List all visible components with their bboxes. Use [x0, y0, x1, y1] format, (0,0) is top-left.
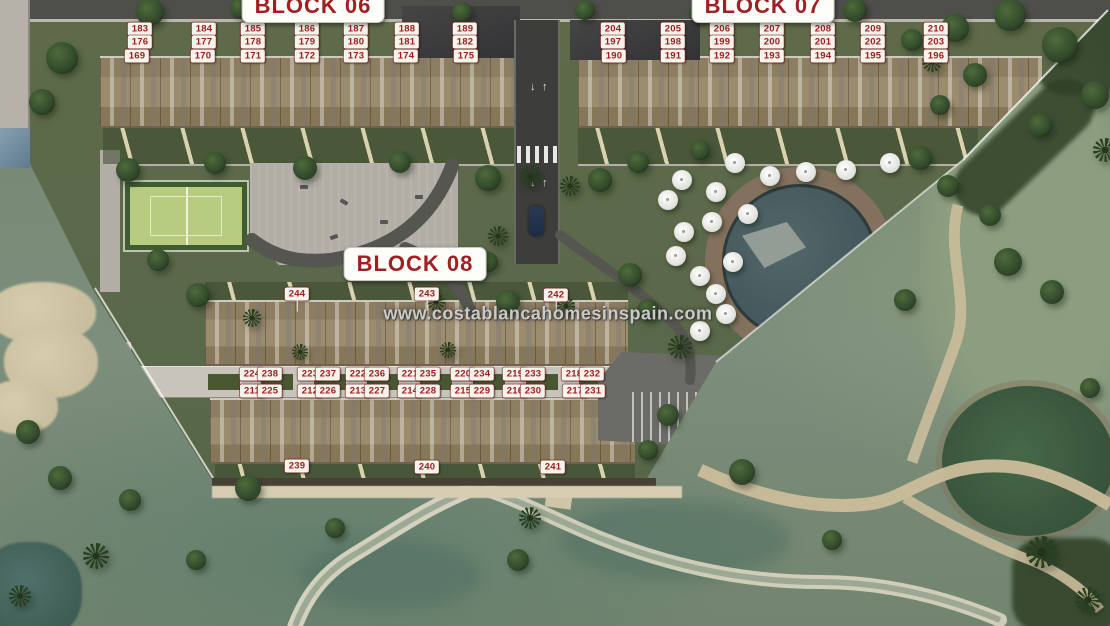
unit-label-235: 235	[416, 368, 440, 381]
unit-label-228: 228	[416, 385, 440, 398]
unit-label-170: 170	[191, 50, 215, 63]
umbrella-icon	[690, 266, 710, 286]
umbrella-icon	[836, 160, 856, 180]
unit-label-231: 231	[581, 385, 605, 398]
unit-label-191: 191	[661, 50, 685, 63]
unit-label-180: 180	[344, 36, 368, 49]
unit-label-210: 210	[924, 23, 948, 36]
unit-label-207: 207	[760, 23, 784, 36]
unit-label-184: 184	[192, 23, 216, 36]
unit-label-188: 188	[395, 23, 419, 36]
unit-label-174: 174	[394, 50, 418, 63]
unit-label-183: 183	[128, 23, 152, 36]
unit-label-192: 192	[710, 50, 734, 63]
unit-label-197: 197	[601, 36, 625, 49]
unit-label-169: 169	[125, 50, 149, 63]
unit-label-234: 234	[470, 368, 494, 381]
unit-label-185: 185	[241, 23, 265, 36]
unit-label-171: 171	[241, 50, 265, 63]
unit-label-193: 193	[760, 50, 784, 63]
block-08-title: BLOCK 08	[344, 247, 487, 281]
umbrella-icon	[674, 222, 694, 242]
unit-label-239: 239	[285, 460, 309, 473]
unit-label-205: 205	[661, 23, 685, 36]
umbrella-icon	[738, 204, 758, 224]
unit-label-182: 182	[453, 36, 477, 49]
unit-label-237: 237	[316, 368, 340, 381]
umbrella-icon	[796, 162, 816, 182]
unit-label-206: 206	[710, 23, 734, 36]
unit-label-225: 225	[258, 385, 282, 398]
unit-label-243: 243	[415, 288, 439, 301]
unit-label-198: 198	[661, 36, 685, 49]
umbrella-icon	[702, 212, 722, 232]
unit-label-186: 186	[295, 23, 319, 36]
unit-label-202: 202	[861, 36, 885, 49]
unit-label-209: 209	[861, 23, 885, 36]
unit-label-227: 227	[365, 385, 389, 398]
unit-label-226: 226	[316, 385, 340, 398]
umbrella-icon	[658, 190, 678, 210]
unit-label-189: 189	[453, 23, 477, 36]
unit-label-187: 187	[344, 23, 368, 36]
unit-label-230: 230	[521, 385, 545, 398]
umbrella-icon	[723, 252, 743, 272]
unit-label-201: 201	[811, 36, 835, 49]
unit-label-244: 244	[285, 288, 309, 301]
unit-label-172: 172	[295, 50, 319, 63]
unit-label-176: 176	[128, 36, 152, 49]
unit-label-232: 232	[580, 368, 604, 381]
unit-label-195: 195	[861, 50, 885, 63]
block-06-title: BLOCK 06	[242, 0, 385, 23]
umbrella-icon	[760, 166, 780, 186]
unit-label-178: 178	[241, 36, 265, 49]
unit-label-181: 181	[395, 36, 419, 49]
unit-label-233: 233	[521, 368, 545, 381]
unit-label-229: 229	[470, 385, 494, 398]
unit-label-204: 204	[601, 23, 625, 36]
unit-label-238: 238	[258, 368, 282, 381]
block-07-title: BLOCK 07	[692, 0, 835, 23]
umbrella-icon	[725, 153, 745, 173]
site-plan: ↓ ↑ ↓ ↑	[0, 0, 1110, 626]
unit-label-194: 194	[811, 50, 835, 63]
unit-label-175: 175	[454, 50, 478, 63]
unit-label-241: 241	[541, 461, 565, 474]
unit-label-190: 190	[602, 50, 626, 63]
unit-label-200: 200	[760, 36, 784, 49]
unit-label-240: 240	[415, 461, 439, 474]
unit-label-203: 203	[924, 36, 948, 49]
unit-label-242: 242	[544, 289, 568, 302]
unit-label-236: 236	[365, 368, 389, 381]
umbrella-icon	[706, 284, 726, 304]
unit-label-199: 199	[710, 36, 734, 49]
unit-label-177: 177	[192, 36, 216, 49]
unit-label-179: 179	[295, 36, 319, 49]
umbrella-icon	[706, 182, 726, 202]
unit-label-208: 208	[811, 23, 835, 36]
umbrella-icon	[672, 170, 692, 190]
unit-label-173: 173	[344, 50, 368, 63]
umbrella-icon	[880, 153, 900, 173]
umbrella-icon	[716, 304, 736, 324]
umbrella-icon	[666, 246, 686, 266]
unit-label-196: 196	[924, 50, 948, 63]
watermark: www.costablancahomesinspain.com	[384, 304, 713, 325]
